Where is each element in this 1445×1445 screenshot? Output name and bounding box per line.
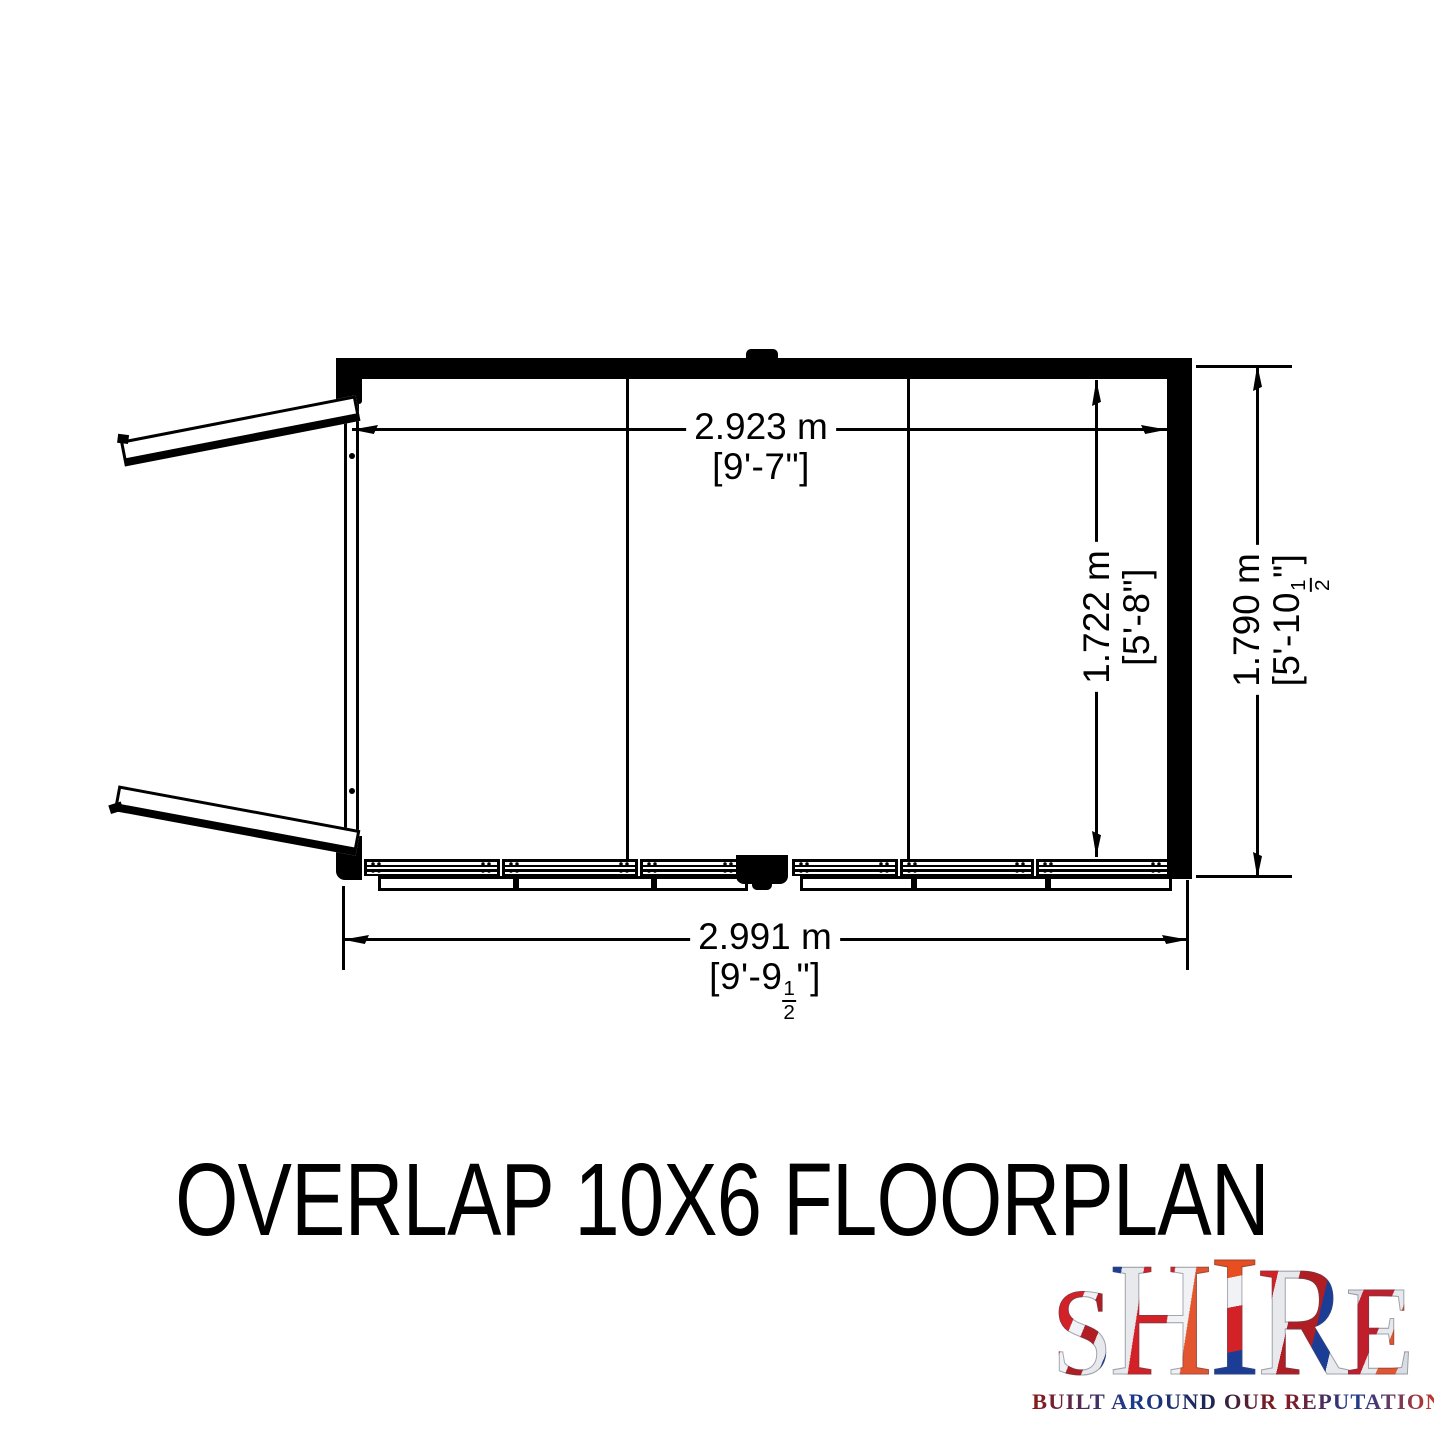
dim-interior-width-label: 2.923 m [9'-7"] <box>686 407 836 487</box>
wall-top <box>338 358 1192 379</box>
floor-panel-divider-1 <box>626 379 629 859</box>
fraction: 12 <box>782 978 796 1024</box>
fraction-numerator: 1 <box>782 978 796 1002</box>
floorplan-drawing: 2.923 m [9'-7"] 1.722 m [5'-8"] 1.790 m … <box>0 0 1445 1445</box>
floor-plank <box>364 859 500 876</box>
floor-plank <box>792 859 898 876</box>
fraction-denominator: 2 <box>783 1002 795 1024</box>
floor-panel-divider-2 <box>907 379 910 859</box>
drawing-title: OVERLAP 10X6 FLOORPLAN <box>175 1148 1269 1251</box>
dim-interior-depth-arrow-top <box>1092 380 1101 406</box>
floor-plank <box>1036 859 1170 876</box>
dim-exterior-depth-label: 1.790 m [5'-1012"] <box>1227 545 1333 695</box>
logo-wordmark: S H I R E <box>1056 1246 1410 1385</box>
door-leaf-top <box>120 395 361 466</box>
floor-center-connector <box>736 855 788 884</box>
dim-metric-value: 1.790 m <box>1227 553 1267 687</box>
logo-letter: H <box>1109 1255 1213 1385</box>
dim-exterior-width-arrow-left <box>343 935 369 944</box>
imperial-prefix: [9'-9 <box>709 956 782 997</box>
floor-plank <box>900 859 1034 876</box>
dim-interior-depth-label: 1.722 m [5'-8"] <box>1077 542 1157 692</box>
dim-metric-value: 1.722 m <box>1077 550 1117 684</box>
dim-metric-value: 2.991 m <box>698 917 832 957</box>
dim-imperial-value: [5'-8"] <box>1117 550 1157 684</box>
dim-exterior-width-ext-left <box>342 886 345 970</box>
fraction-denominator: 2 <box>1311 579 1333 591</box>
roof-apex-marker <box>746 349 778 360</box>
imperial-suffix: "] <box>796 956 820 997</box>
door-leaf-bottom <box>114 785 361 855</box>
dim-exterior-depth-ext-top <box>1196 365 1292 368</box>
logo-letter: R <box>1257 1259 1349 1385</box>
fraction: 12 <box>1288 578 1334 592</box>
logo-letter: E <box>1345 1280 1414 1382</box>
wall-right <box>1167 358 1192 879</box>
dim-metric-value: 2.923 m <box>694 407 828 447</box>
dim-interior-width-arrow-right <box>1141 425 1167 434</box>
dim-exterior-width-arrow-right <box>1162 935 1188 944</box>
dim-interior-depth-arrow-bottom <box>1092 831 1101 857</box>
floor-under-plank <box>516 876 654 891</box>
imperial-suffix: "] <box>1266 554 1307 578</box>
floor-under-plank <box>654 876 748 891</box>
dim-exterior-width-ext-right <box>1186 880 1189 970</box>
floor-under-plank <box>1048 876 1172 891</box>
floor-plank <box>640 859 742 876</box>
dim-imperial-value: [9'-7"] <box>694 447 828 487</box>
logo-letter: I <box>1209 1246 1260 1385</box>
door-frame <box>344 398 359 838</box>
dim-exterior-depth-ext-bottom <box>1196 875 1292 878</box>
dim-imperial-value: [9'-912"] <box>698 957 832 1023</box>
floor-under-plank <box>378 876 516 891</box>
imperial-prefix: [5'-10 <box>1266 592 1307 686</box>
dim-exterior-depth-arrow-top <box>1253 365 1262 391</box>
fraction-numerator: 1 <box>1288 578 1312 592</box>
floor-under-plank <box>800 876 914 891</box>
floor-plank <box>502 859 638 876</box>
dim-imperial-value: [5'-1012"] <box>1267 553 1333 687</box>
dim-exterior-width-label: 2.991 m [9'-912"] <box>690 917 840 1023</box>
logo-letter: S <box>1052 1283 1113 1382</box>
floor-under-plank <box>914 876 1048 891</box>
shire-logo: S H I R E BUILT AROUND OUR REPUTATION <box>1032 1246 1434 1415</box>
